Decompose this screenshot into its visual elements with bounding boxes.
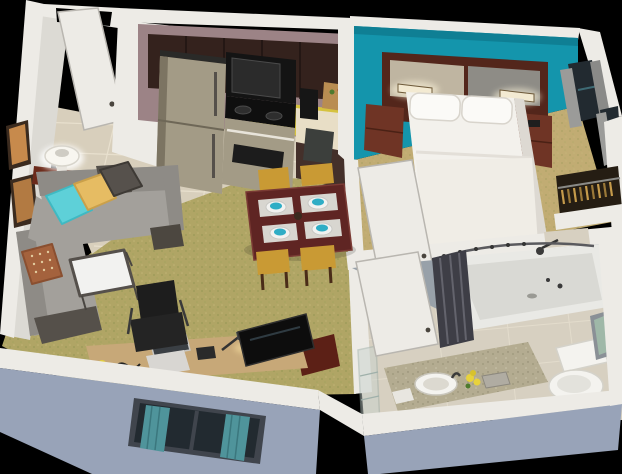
lamp-shade-top — [55, 149, 69, 157]
entry-door-handle — [109, 101, 114, 106]
dining-chair-top-left — [258, 167, 290, 191]
dining-chair-top-right — [300, 163, 334, 186]
dining-chair-bottom-left — [256, 249, 290, 275]
trash-can — [303, 128, 334, 164]
desk-phone — [196, 346, 216, 360]
sink-basin — [423, 378, 449, 391]
telephone — [528, 120, 540, 127]
toilet-seat — [557, 375, 591, 393]
table-centerpiece — [294, 212, 302, 220]
microwave-door — [232, 58, 280, 98]
wall-art-1 — [9, 124, 28, 165]
burner-1 — [235, 106, 251, 114]
burner-2 — [266, 112, 282, 120]
end-table-top — [70, 250, 134, 296]
bed-pillow-right — [461, 96, 512, 125]
coffee-maker — [300, 88, 318, 120]
tub-drain — [527, 294, 537, 299]
shower-head — [536, 247, 544, 255]
bedroom-door-handle — [422, 254, 427, 259]
sofa-chaise-foot — [150, 224, 184, 250]
floorplan-svg — [0, 0, 622, 474]
kitchen-bedroom-wall — [338, 22, 354, 168]
tub-faucet — [558, 284, 563, 289]
bed-pillow-left — [409, 93, 460, 122]
basket-item-green — [330, 90, 335, 95]
tub-knob — [546, 278, 550, 282]
refrigerator-handle-lower — [212, 134, 215, 178]
bathroom-door-handle — [426, 328, 431, 333]
floorplan-render — [0, 0, 622, 474]
refrigerator-handle-upper — [214, 72, 217, 116]
